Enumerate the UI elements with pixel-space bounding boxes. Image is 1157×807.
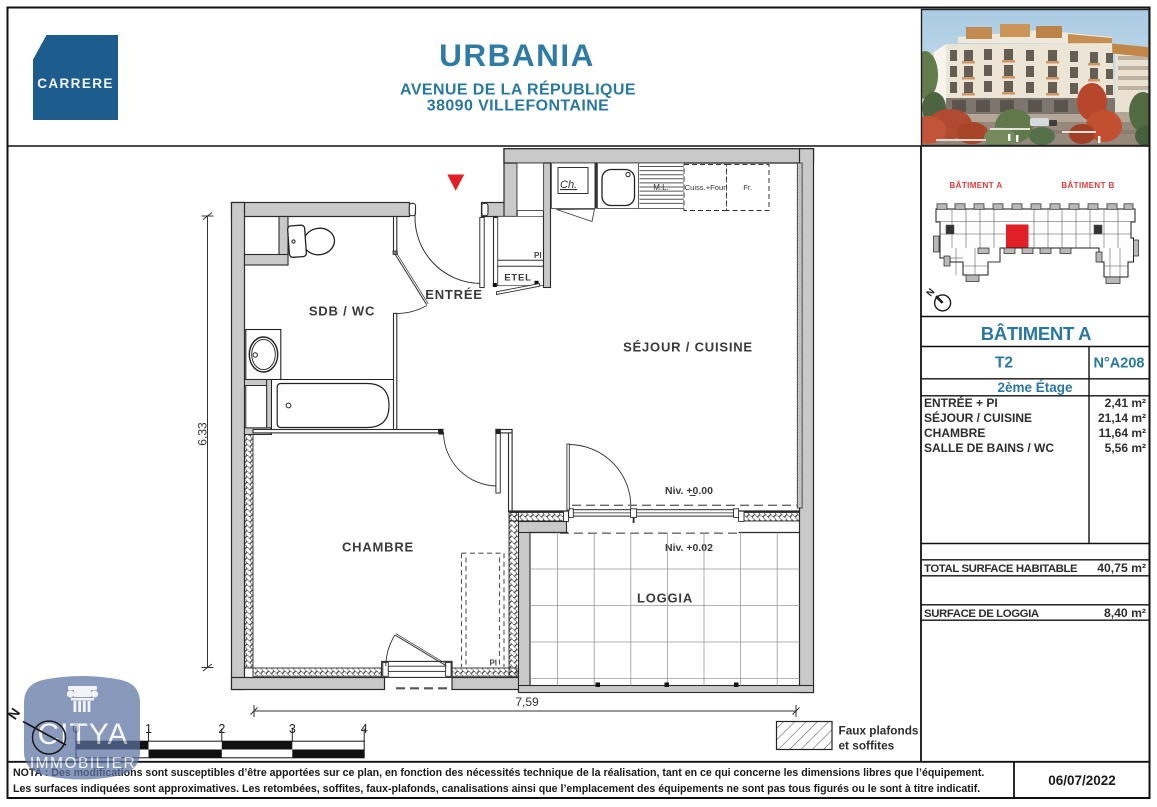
- svg-text:BÂTIMENT A: BÂTIMENT A: [949, 181, 1002, 190]
- svg-text:Pl: Pl: [489, 659, 497, 668]
- svg-text:T2: T2: [995, 355, 1013, 372]
- svg-text:BÂTIMENT A: BÂTIMENT A: [981, 323, 1091, 344]
- svg-text:40,75 m²: 40,75 m²: [1097, 561, 1146, 575]
- svg-text:SALLE DE BAINS / WC: SALLE DE BAINS / WC: [924, 441, 1054, 455]
- svg-text:2ème Étage: 2ème Étage: [997, 380, 1073, 395]
- svg-text:IMMOBILIER: IMMOBILIER: [30, 755, 136, 772]
- svg-text:6,33: 6,33: [196, 422, 210, 446]
- svg-text:5,56 m²: 5,56 m²: [1105, 441, 1146, 455]
- svg-text:N°A208: N°A208: [1094, 356, 1145, 372]
- svg-text:TOTAL SURFACE HABITABLE: TOTAL SURFACE HABITABLE: [924, 563, 1078, 575]
- svg-text:AVENUE DE LA RÉPUBLIQUE: AVENUE DE LA RÉPUBLIQUE: [400, 80, 636, 99]
- svg-text:7,59: 7,59: [515, 695, 539, 709]
- svg-text:Cuiss.+Four: Cuiss.+Four: [685, 183, 727, 192]
- svg-text:ETEL: ETEL: [504, 273, 531, 284]
- svg-text:URBANIA: URBANIA: [439, 37, 595, 73]
- svg-text:Niv. +0.02: Niv. +0.02: [665, 542, 713, 554]
- svg-text:Ch.: Ch.: [560, 179, 577, 191]
- svg-text:11,64 m²: 11,64 m²: [1099, 426, 1146, 440]
- svg-text:SDB / WC: SDB / WC: [309, 304, 375, 319]
- svg-text:Les surfaces indiquées sont ap: Les surfaces indiquées sont approximativ…: [13, 783, 980, 795]
- svg-text:ENTRÉE + PI: ENTRÉE + PI: [924, 395, 998, 410]
- svg-text:BÂTIMENT B: BÂTIMENT B: [1061, 181, 1114, 190]
- svg-text:SÉJOUR / CUISINE: SÉJOUR / CUISINE: [623, 340, 753, 355]
- svg-text:38090 VILLEFONTAINE: 38090 VILLEFONTAINE: [427, 98, 609, 115]
- svg-text:CHAMBRE: CHAMBRE: [924, 426, 985, 440]
- svg-text:LOGGIA: LOGGIA: [637, 591, 693, 606]
- svg-text:et soffites: et soffites: [839, 739, 895, 753]
- svg-text:Faux plafonds: Faux plafonds: [839, 724, 919, 738]
- svg-text:Pl: Pl: [534, 251, 542, 260]
- svg-text:NOTA : Des modifications sont: NOTA : Des modifications sont susceptibl…: [13, 767, 984, 779]
- svg-text:CARRERE: CARRERE: [37, 76, 114, 91]
- svg-text:8,40 m²: 8,40 m²: [1104, 606, 1146, 620]
- svg-text:SÉJOUR / CUISINE: SÉJOUR / CUISINE: [924, 410, 1032, 425]
- svg-text:Fr.: Fr.: [743, 183, 752, 192]
- svg-text:ENTRÉE: ENTRÉE: [425, 287, 483, 302]
- svg-text:SURFACE DE LOGGIA: SURFACE DE LOGGIA: [924, 608, 1039, 620]
- svg-text:2,41 m²: 2,41 m²: [1105, 396, 1146, 410]
- svg-text:Niv. +0.00: Niv. +0.00: [665, 485, 713, 497]
- svg-text:CHAMBRE: CHAMBRE: [342, 540, 414, 555]
- svg-text:21,14 m²: 21,14 m²: [1098, 411, 1146, 425]
- svg-text:CITYA: CITYA: [37, 718, 128, 751]
- svg-text:M.L.: M.L.: [653, 183, 669, 192]
- svg-text:06/07/2022: 06/07/2022: [1048, 773, 1116, 788]
